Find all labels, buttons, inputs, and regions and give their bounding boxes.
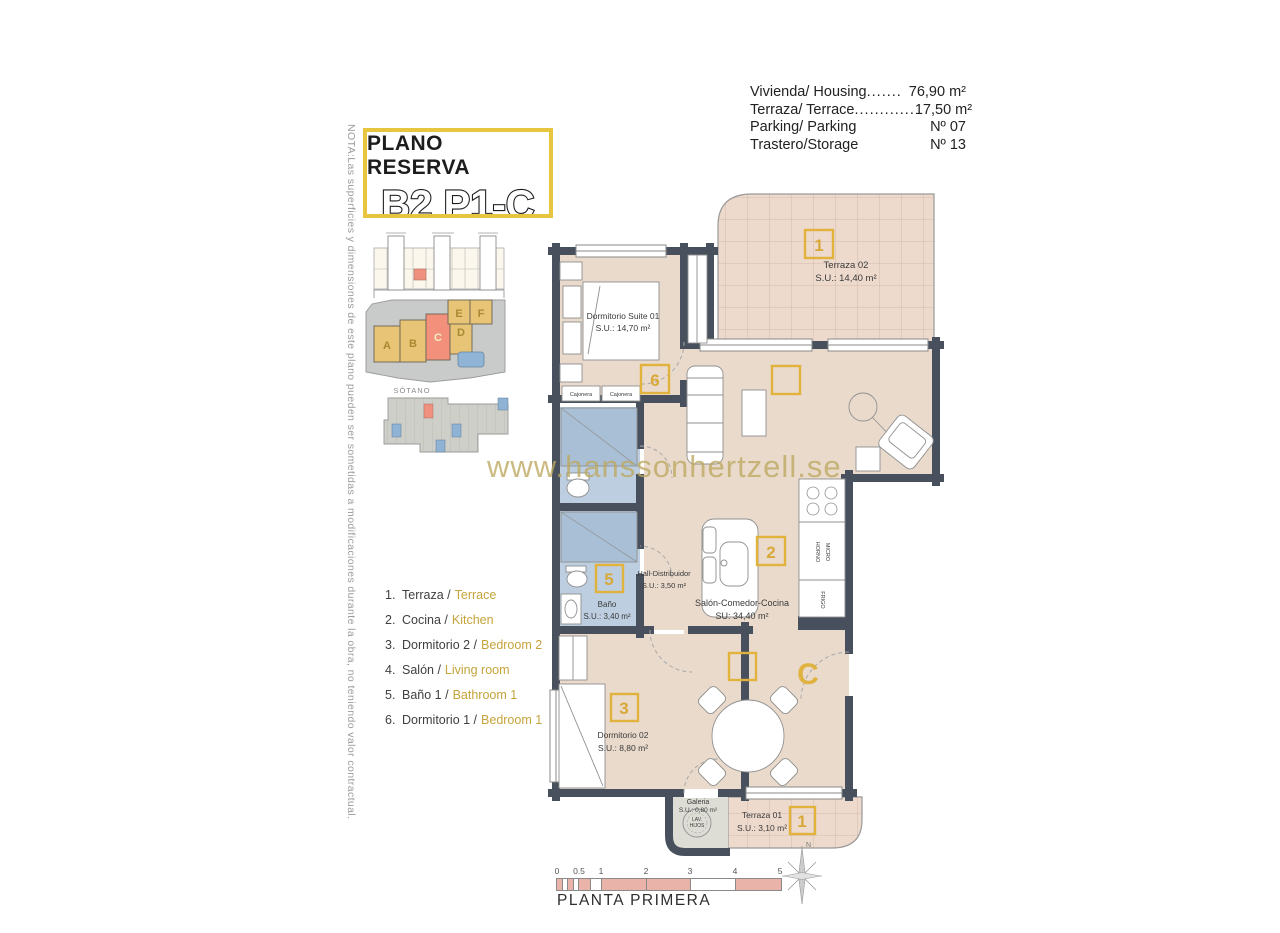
legend-es: Salón / [402,664,441,677]
info-value: Nº 13 [930,137,966,155]
cajonera-label-1: Cajonera [570,392,593,398]
highlighted-unit-cell [414,269,426,280]
cajonera-label-2: Cajonera [610,392,633,398]
info-value: Nº 07 [930,119,966,137]
legend-item: 5.Baño 1 /Bathroom 1 [385,689,545,702]
dorm02-area: S.U.: 8,80 m² [598,743,648,753]
plan-title: PLANO RESERVA [367,132,549,180]
legend-item: 6.Dormitorio 1 /Bedroom 1 [385,714,545,727]
compass-rose: N [772,838,832,908]
galeria-door-opening [684,789,718,798]
unit-code: B2 P1-C [381,183,534,214]
scale-bar: 0 0.5 1 2 3 4 5 [556,866,782,892]
entry-door-letter: C [797,658,819,691]
salon-area: SU: 34,40 m² [715,611,768,621]
terrace02-name: Terraza 02 [824,260,869,271]
scale-tick: 3 [688,866,693,876]
info-row-terrace: Terraza/ Terrace............17,50 m² [750,102,966,120]
dining-set [696,684,799,787]
building-letter-c: C [434,332,442,344]
tag-6: 6 [650,371,659,390]
legend-en: Terrace [455,589,497,602]
legend-number: 2. [385,614,402,627]
elevation-towers [388,236,496,290]
bano-area: S.U.: 3,40 m² [583,612,630,621]
surface-info-block: Vivienda/ Housing.......76,90 m² Terraza… [750,84,966,154]
legend-en: Kitchen [452,614,494,627]
info-label: Parking/ Parking [750,119,856,137]
disclaimer-note-vertical: NOTA:Las superficies y dimensiones de es… [341,124,357,774]
basement-parking-grid [384,398,508,452]
scale-tick: 0.5 [573,866,585,876]
legend-es: Cocina / [402,614,448,627]
building-letter-f: F [478,308,485,320]
sotano-label: SÓTANO [393,386,430,395]
pool [458,352,484,367]
scale-tick: 4 [733,866,738,876]
watermark: www.hanssonhertzell.se [487,449,817,485]
building-elevation-schematic [366,228,511,298]
scale-tick: 1 [599,866,604,876]
terrace02-area: S.U.: 14,40 m² [815,273,876,284]
legend-item: 4.Salón /Living room [385,664,545,677]
side-table [856,447,880,471]
info-row-parking: Parking/ ParkingNº 07 [750,119,966,137]
oven-label: HORNO [814,542,820,563]
legend-number: 6. [385,714,402,727]
compass-crossbar [784,873,820,880]
microwave-label: MICRO [824,543,830,562]
info-value: 17,50 m² [915,102,972,120]
floor-caption: PLANTA PRIMERA [557,892,711,910]
tag-5: 5 [604,570,613,589]
kitchen-wall-stub [798,616,850,630]
legend-es: Dormitorio 2 / [402,639,477,652]
scale-tick: 2 [644,866,649,876]
legend-en: Bedroom 2 [481,639,542,652]
washer-label-2: HIJOS [690,823,705,829]
building-letter-e: E [455,308,462,320]
room-legend: 1.Terraza /Terrace 2.Cocina /Kitchen 3.D… [385,589,545,739]
info-row-housing: Vivienda/ Housing.......76,90 m² [750,84,966,102]
legend-en: Bathroom 1 [453,689,518,702]
galeria-area: S.U.: 0,80 m² [679,807,718,814]
dorm02-name: Dormitorio 02 [597,730,648,740]
unit-code-outline-text: B2 P1-C [373,180,543,214]
info-label: Terraza/ Terrace [750,102,855,120]
terrace01-area: S.U.: 3,10 m² [737,823,787,833]
fridge-label: FRIGO [819,591,825,609]
info-leader: ............ [855,102,915,120]
site-plan-schematic: A B C D E F [362,296,512,388]
coffee-table [742,390,766,436]
legend-es: Terraza / [402,589,451,602]
legend-es: Baño 1 / [402,689,449,702]
legend-item: 3.Dormitorio 2 /Bedroom 2 [385,639,545,652]
terrace01-name: Terraza 01 [742,810,782,820]
bano-name: Baño [598,600,617,609]
info-label: Trastero/Storage [750,137,858,155]
building-letter-a: A [383,340,391,352]
building-letter-b: B [409,338,417,350]
compass-north-label: N [806,842,811,849]
highlighted-parking-cell [424,404,433,418]
legend-number: 5. [385,689,402,702]
info-row-storage: Trastero/StorageNº 13 [750,137,966,155]
legend-item: 1.Terraza /Terrace [385,589,545,602]
salon-name: Salón-Comedor-Cocina [695,598,789,608]
tag-1-terrace01: 1 [797,812,806,831]
suite-name: Dormitorio Suite 01 [587,311,660,321]
scale-bar-strip [556,878,782,891]
scale-tick: 0 [555,866,560,876]
tag-2: 2 [766,543,775,562]
building-letter-d: D [457,327,465,339]
legend-en: Bedroom 1 [481,714,542,727]
info-leader: ....... [867,84,902,102]
legend-number: 3. [385,639,402,652]
tag-1-terrace02: 1 [814,236,823,255]
legend-item: 2.Cocina /Kitchen [385,614,545,627]
title-block: PLANO RESERVA B2 P1-C [363,128,553,218]
legend-en: Living room [445,664,510,677]
legend-number: 1. [385,589,402,602]
tag-3: 3 [619,699,628,718]
galeria-name: Galeria [687,799,710,806]
legend-es: Dormitorio 1 / [402,714,477,727]
hall-area: S.U.: 3,50 m² [642,581,687,590]
nook-closet [688,255,707,343]
suite-area: S.U.: 14,70 m² [596,323,651,333]
hall-name: Hall-Distribuidor [637,569,691,578]
info-label: Vivienda/ Housing [750,84,867,102]
legend-number: 4. [385,664,402,677]
info-value: 76,90 m² [909,84,966,102]
floor-plan: 6 1 2 5 3 1 C Terraza 02 S.U.: 14,40 m² … [540,182,960,872]
